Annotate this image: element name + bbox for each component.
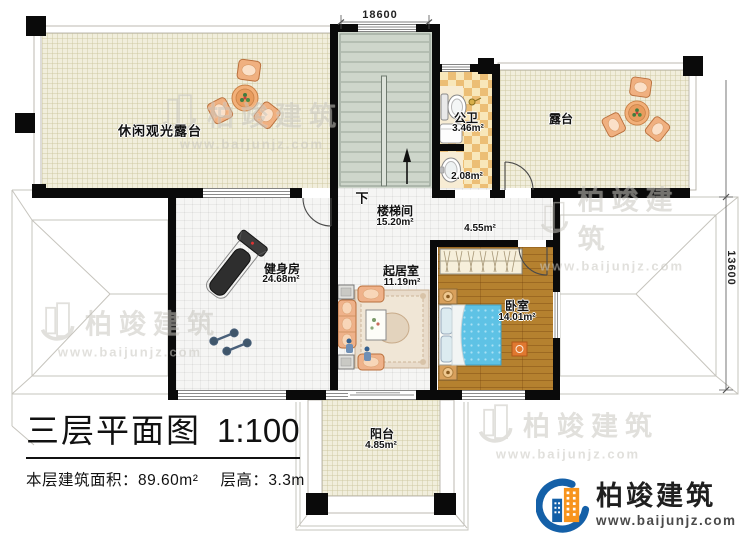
- room-area-bathroom-sub: 2.08m²: [451, 172, 483, 182]
- plan-scale: 1:100: [217, 412, 300, 449]
- dimension-top: 18600: [362, 9, 398, 21]
- floor-area-text: 本层建筑面积：89.60m²: [26, 472, 198, 489]
- floor-height-text: 层高：3.3m: [220, 472, 304, 489]
- room-label-living-room: 起居室: [383, 265, 419, 277]
- title-block: 三层平面图1:100 本层建筑面积：89.60m²层高：3.3m: [26, 404, 327, 490]
- stairs-down-label: 下: [355, 192, 368, 205]
- room-label-leisure-terrace: 休闲观光露台: [118, 125, 202, 138]
- company-logo-icon: [536, 476, 590, 534]
- room-area-gym: 24.68m²: [262, 275, 299, 285]
- stairs: [340, 34, 430, 186]
- company-logo-brand: 柏竣建筑: [596, 482, 737, 512]
- dumbbells: [209, 328, 253, 357]
- room-area-bedroom: 14.01m²: [498, 313, 535, 323]
- dimension-right: 13600: [725, 250, 737, 286]
- plan-title-line: 三层平面图1:100: [26, 404, 300, 459]
- treadmill: [200, 229, 268, 304]
- stair-direction-arrow: [403, 148, 411, 162]
- room-area-corridor: 4.55m²: [464, 224, 496, 234]
- room-label-terrace: 露台: [549, 113, 573, 125]
- wardrobe: [440, 249, 522, 274]
- company-logo: 柏竣建筑 www.baijunjz.com: [536, 476, 737, 534]
- company-logo-url: www.baijunjz.com: [596, 513, 737, 528]
- plan-title: 三层平面图: [26, 412, 201, 449]
- living-room-furniture: [338, 285, 429, 370]
- plan-subtitle: 本层建筑面积：89.60m²层高：3.3m: [26, 468, 327, 490]
- bed: [439, 305, 501, 365]
- room-area-living-room: 11.19m²: [384, 278, 421, 288]
- room-label-balcony: 阳台: [370, 428, 394, 440]
- room-area-stairwell: 15.20m²: [376, 218, 413, 228]
- room-area-bathroom: 3.46m²: [452, 124, 484, 134]
- coffee-table: [366, 310, 386, 340]
- shower-icon: [469, 98, 481, 105]
- bedside-mat: [512, 342, 527, 356]
- floorplan-page: 柏竣建筑 www.baijunjz.com 柏竣建筑 www.baijunjz.…: [0, 0, 750, 546]
- room-area-balcony: 4.85m²: [365, 441, 397, 451]
- room-label-stairwell: 楼梯间: [377, 205, 413, 217]
- room-label-bedroom: 卧室: [505, 300, 529, 312]
